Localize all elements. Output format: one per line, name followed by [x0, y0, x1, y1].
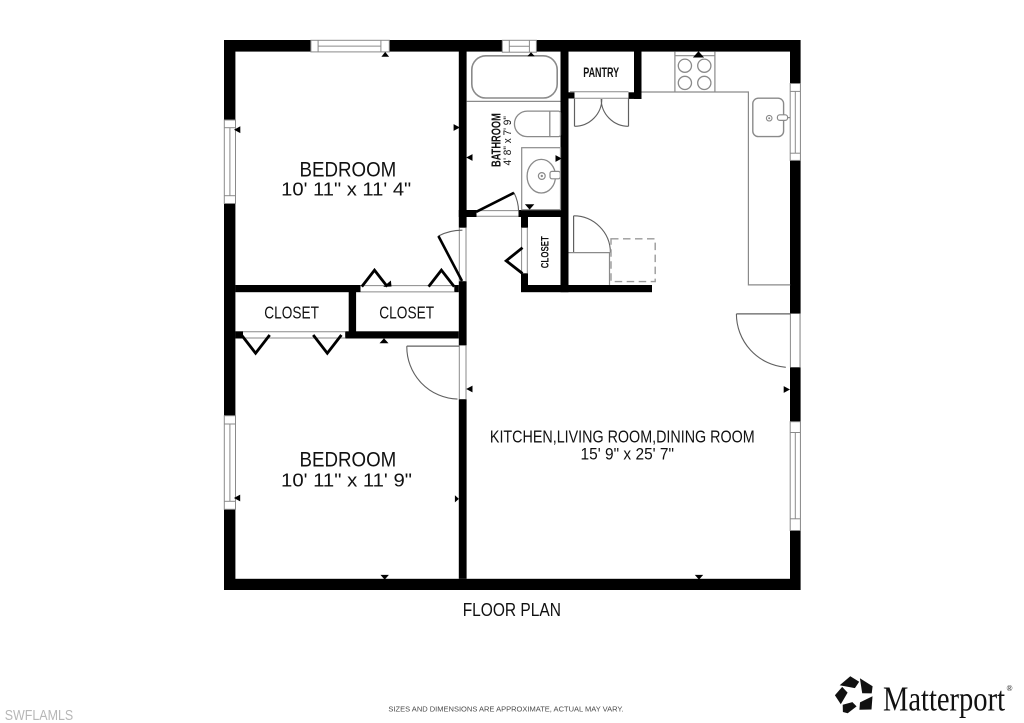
svg-text:PANTRY: PANTRY — [583, 65, 619, 80]
svg-text:SIZES AND DIMENSIONS ARE APPRO: SIZES AND DIMENSIONS ARE APPROXIMATE, AC… — [388, 705, 623, 714]
svg-text:BEDROOM: BEDROOM — [300, 157, 397, 181]
svg-text:FLOOR PLAN: FLOOR PLAN — [463, 600, 561, 620]
svg-text:®: ® — [1007, 684, 1013, 693]
svg-text:15' 9" x 25' 7": 15' 9" x 25' 7" — [581, 446, 675, 464]
svg-text:CLOSET: CLOSET — [264, 303, 319, 323]
svg-text:10' 11" x 11' 9": 10' 11" x 11' 9" — [281, 471, 412, 491]
svg-text:4' 8" x 7' 9": 4' 8" x 7' 9" — [502, 116, 514, 165]
svg-text:SWFLAMLS: SWFLAMLS — [5, 707, 74, 723]
svg-text:CLOSET: CLOSET — [540, 236, 552, 268]
svg-text:BEDROOM: BEDROOM — [300, 447, 397, 471]
svg-text:CLOSET: CLOSET — [379, 303, 434, 323]
svg-text:KITCHEN,LIVING ROOM,DINING ROO: KITCHEN,LIVING ROOM,DINING ROOM — [490, 427, 755, 447]
svg-text:Matterport: Matterport — [883, 680, 1005, 719]
svg-text:10' 11" x 11' 4": 10' 11" x 11' 4" — [281, 180, 411, 200]
